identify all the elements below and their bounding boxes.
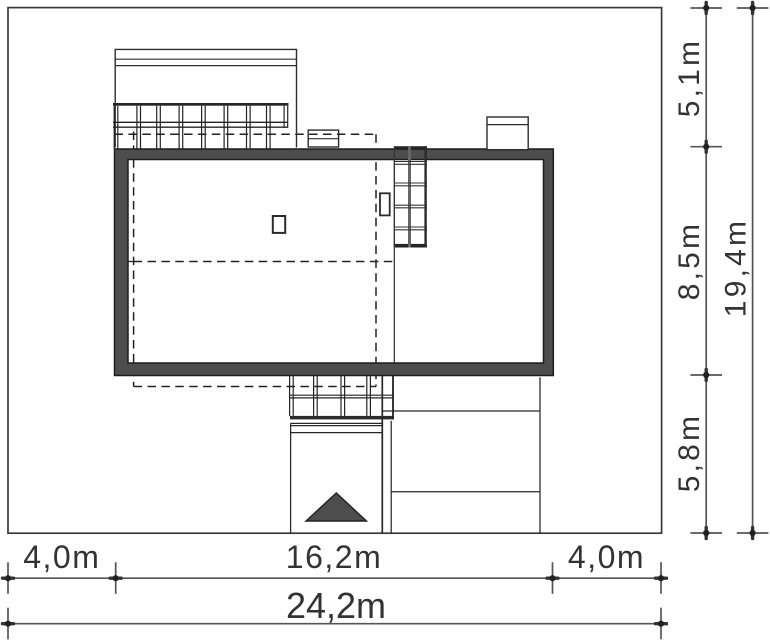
svg-text:5,1m: 5,1m — [673, 38, 706, 118]
svg-text:4,0m: 4,0m — [23, 539, 100, 575]
svg-text:4,0m: 4,0m — [568, 539, 645, 575]
svg-text:5,8m: 5,8m — [673, 413, 706, 493]
svg-text:19,4m: 19,4m — [720, 218, 753, 317]
svg-text:16,2m: 16,2m — [286, 539, 382, 575]
svg-text:24,2m: 24,2m — [286, 585, 386, 626]
svg-text:8,5m: 8,5m — [673, 221, 706, 301]
